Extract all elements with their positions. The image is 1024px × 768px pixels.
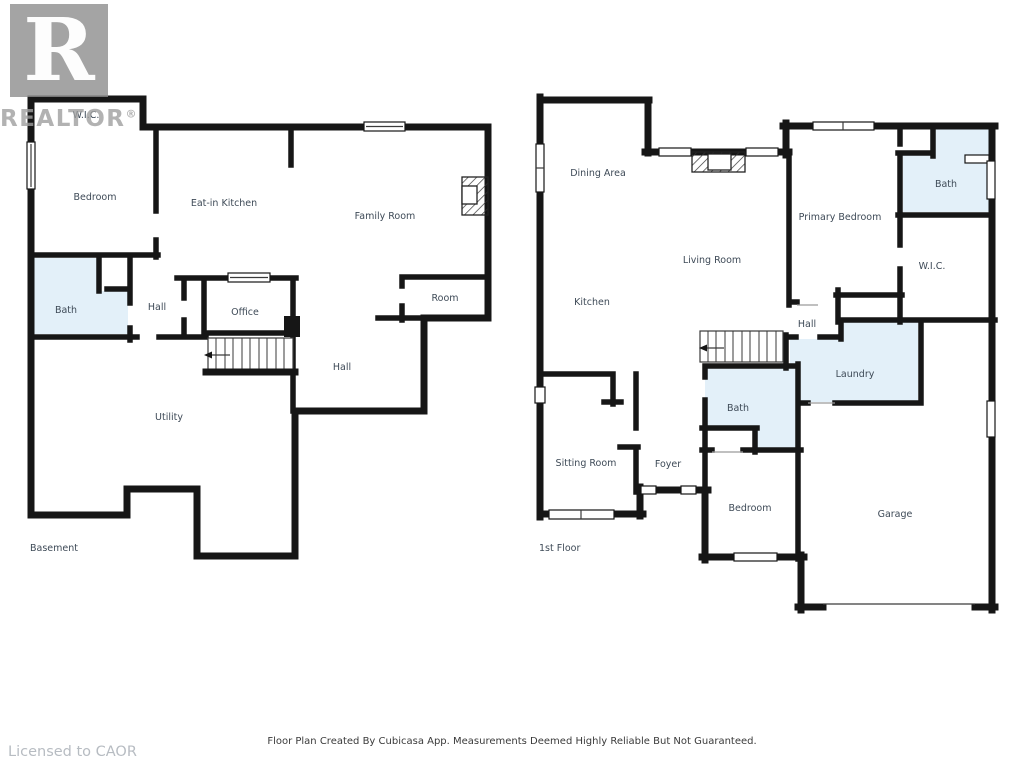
first-floor-plan: Dining Area Living Room Kitchen Primary … bbox=[535, 97, 995, 610]
room-label-bedroom: Bedroom bbox=[729, 503, 772, 514]
floor-label-basement: Basement bbox=[30, 543, 78, 554]
room-label-family-room: Family Room bbox=[355, 211, 416, 222]
basement-chimney-block bbox=[284, 316, 300, 337]
first-floor-laundry-fill bbox=[790, 322, 918, 402]
first-floor-bath-mid-fill bbox=[705, 368, 798, 450]
room-label-laundry: Laundry bbox=[836, 369, 875, 380]
room-label-living-room: Living Room bbox=[683, 255, 741, 266]
room-label-primary-bedroom: Primary Bedroom bbox=[799, 212, 882, 223]
room-label-eat-in-kitchen: Eat-in Kitchen bbox=[191, 198, 257, 209]
first-floor-fireplace-icon bbox=[692, 152, 745, 172]
disclaimer-text: Floor Plan Created By Cubicasa App. Meas… bbox=[0, 736, 1024, 747]
room-label-room: Room bbox=[431, 293, 458, 304]
entry-sidelight-left bbox=[641, 486, 656, 494]
room-label-bath-mid: Bath bbox=[727, 403, 749, 414]
room-label-kitchen: Kitchen bbox=[574, 297, 610, 308]
first-floor-bath-top-fill bbox=[903, 129, 989, 212]
realtor-logo-icon: R bbox=[10, 4, 108, 97]
room-label-dining-area: Dining Area bbox=[570, 168, 626, 179]
realtor-logo-wordmark: REALTOR® bbox=[0, 106, 137, 132]
sitting-room-side-door bbox=[535, 387, 545, 403]
basement-fireplace-icon bbox=[462, 177, 488, 215]
basement-stairs-icon bbox=[204, 338, 295, 372]
first-floor-stairs-icon bbox=[699, 331, 783, 362]
bath-vanity bbox=[965, 155, 989, 163]
room-label-hall: Hall bbox=[148, 302, 166, 313]
basement-floor-plan: W.I.C. Bedroom Eat-in Kitchen Family Roo… bbox=[27, 99, 488, 556]
floor-plan-page: { "watermark": { "logo_letter": "R", "lo… bbox=[0, 0, 1024, 768]
room-label-utility: Utility bbox=[155, 412, 183, 423]
basement-bath-fill bbox=[34, 258, 128, 334]
licensed-to-text: Licensed to CAOR bbox=[8, 744, 137, 760]
room-label-bedroom: Bedroom bbox=[74, 192, 117, 203]
room-label-bath: Bath bbox=[55, 305, 77, 316]
entry-sidelight-right bbox=[681, 486, 696, 494]
room-label-garage: Garage bbox=[878, 509, 913, 520]
room-label-sitting-room: Sitting Room bbox=[556, 458, 617, 469]
realtor-logo-letter: R bbox=[23, 8, 94, 94]
floor-label-1st-floor: 1st Floor bbox=[539, 543, 580, 554]
room-label-hall: Hall bbox=[798, 319, 816, 330]
realtor-watermark: R REALTOR® bbox=[10, 4, 147, 132]
floor-plan-canvas: W.I.C. Bedroom Eat-in Kitchen Family Roo… bbox=[0, 0, 1024, 768]
room-label-wic: W.I.C. bbox=[919, 261, 946, 272]
room-label-office: Office bbox=[231, 307, 259, 318]
room-label-bath-top: Bath bbox=[935, 179, 957, 190]
room-label-foyer: Foyer bbox=[655, 459, 681, 470]
registered-trademark-symbol: ® bbox=[126, 107, 137, 120]
room-label-hall-lower: Hall bbox=[333, 362, 351, 373]
